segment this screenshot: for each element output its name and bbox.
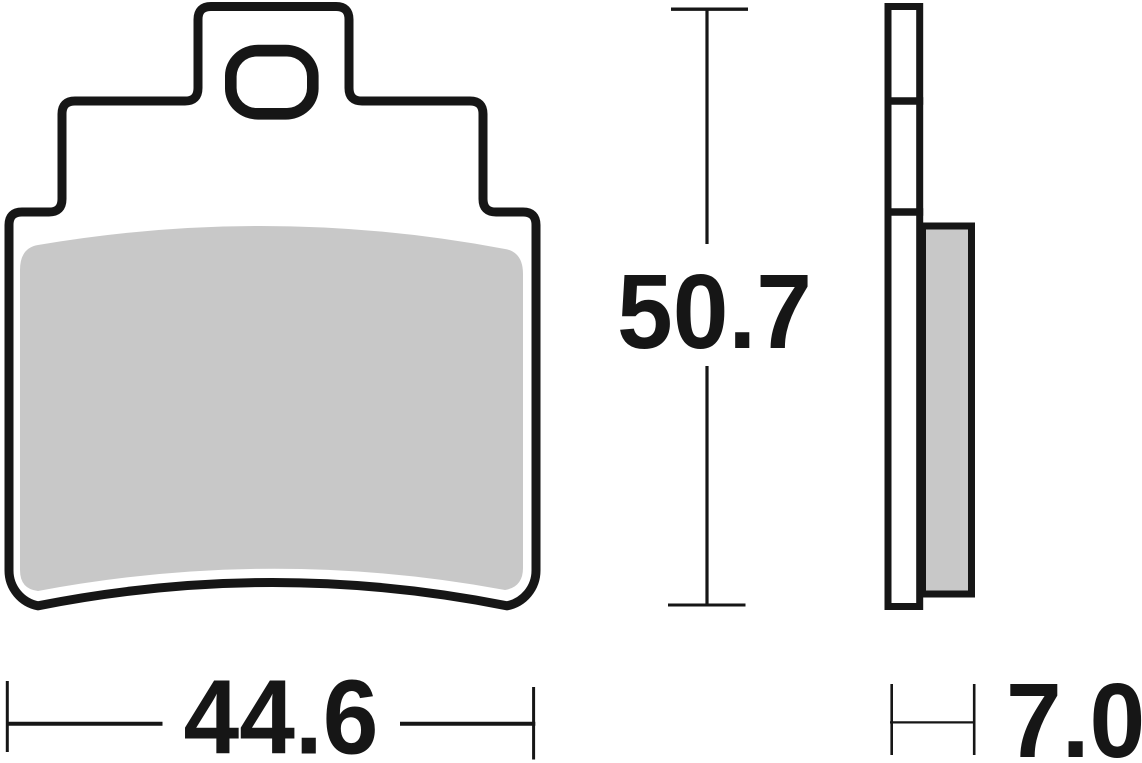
svg-text:44.6: 44.6 [184,659,379,763]
svg-text:7.0: 7.0 [1006,662,1142,763]
svg-text:50.7: 50.7 [617,253,812,371]
